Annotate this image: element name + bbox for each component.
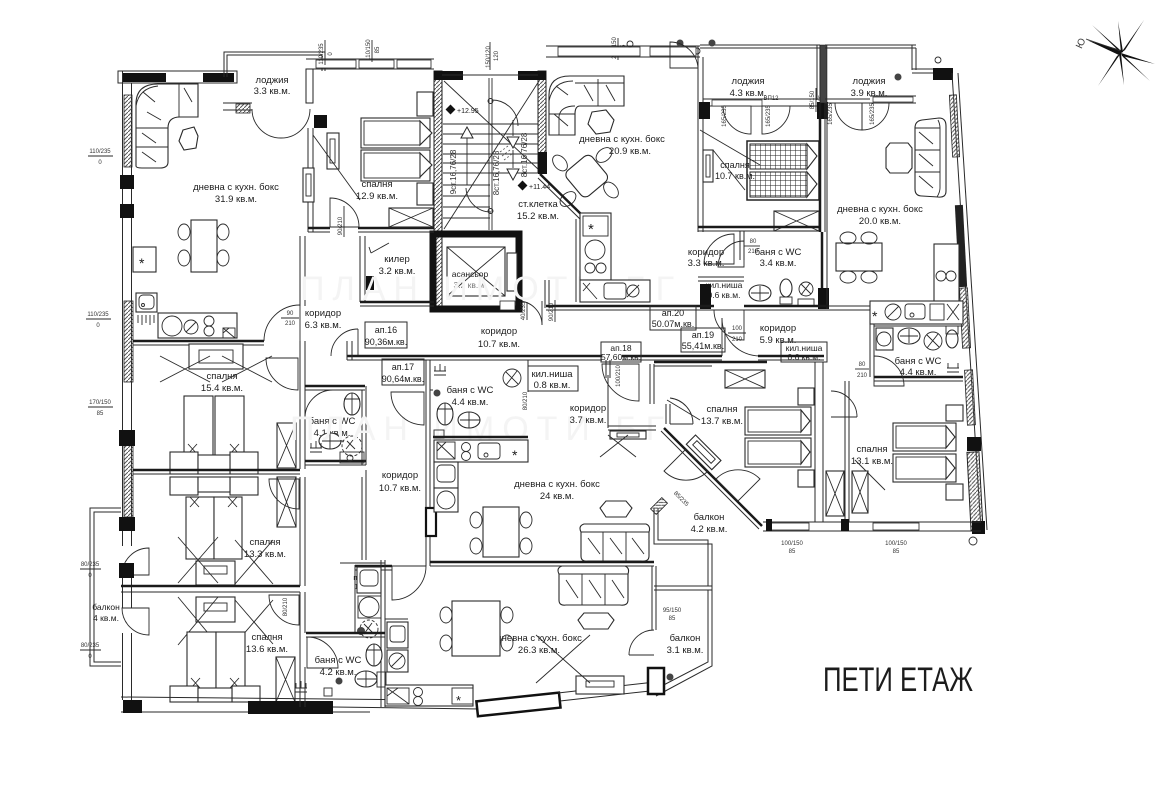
svg-text:дневна с кухн. бокс: дневна с кухн. бокс — [496, 633, 582, 644]
svg-text:165/235: 165/235 — [766, 105, 772, 127]
svg-text:24 кв.м.: 24 кв.м. — [540, 491, 574, 502]
svg-text:дневна с кухн. бокс: дневна с кухн. бокс — [579, 134, 665, 145]
svg-text:110/235: 110/235 — [89, 149, 111, 155]
svg-text:57,60м.кв.: 57,60м.кв. — [601, 352, 641, 362]
svg-text:3.7 кв.м.: 3.7 кв.м. — [570, 415, 607, 426]
svg-text:100/150: 100/150 — [781, 541, 803, 547]
svg-text:85: 85 — [893, 549, 900, 555]
svg-text:6.3 кв.м.: 6.3 кв.м. — [305, 320, 342, 331]
svg-text:210: 210 — [748, 249, 759, 255]
svg-text:3.1 кв.м.: 3.1 кв.м. — [667, 645, 704, 656]
svg-text:лоджия: лоджия — [852, 76, 885, 87]
svg-text:8ст.16,76/28: 8ст.16,76/28 — [492, 150, 501, 195]
svg-text:85: 85 — [375, 46, 381, 53]
svg-text:дневна с кухн. бокс: дневна с кухн. бокс — [837, 204, 923, 215]
svg-text:3.4 кв.м.: 3.4 кв.м. — [760, 258, 797, 269]
svg-text:коридор: коридор — [382, 470, 418, 481]
svg-text:баня с WC: баня с WC — [755, 247, 802, 258]
svg-text:9ст.16,76/28: 9ст.16,76/28 — [449, 149, 458, 194]
svg-text:165/235: 165/235 — [828, 103, 834, 125]
svg-text:лоджия: лоджия — [255, 75, 288, 86]
svg-text:спалня: спалня — [361, 179, 392, 190]
svg-text:90: 90 — [287, 311, 294, 317]
svg-text:0.8 кв.м.: 0.8 кв.м. — [534, 380, 571, 391]
svg-text:31.9 кв.м.: 31.9 кв.м. — [215, 194, 257, 205]
svg-text:110/235: 110/235 — [87, 312, 109, 318]
svg-text:85: 85 — [669, 616, 676, 622]
svg-text:кил.ниша: кил.ниша — [531, 369, 573, 380]
svg-text:спалня: спалня — [706, 404, 737, 415]
svg-text:85: 85 — [789, 549, 796, 555]
svg-text:спалня: спалня — [856, 444, 887, 455]
svg-text:кил.ниша: кил.ниша — [706, 280, 743, 290]
svg-text:*: * — [872, 308, 878, 324]
svg-text:170/150: 170/150 — [89, 400, 111, 406]
svg-text:3.3 кв.м.: 3.3 кв.м. — [254, 86, 291, 97]
svg-text:15.2 кв.м.: 15.2 кв.м. — [517, 211, 559, 222]
svg-text:коридор: коридор — [688, 247, 724, 258]
svg-text:85: 85 — [97, 411, 104, 417]
svg-text:балкон: балкон — [670, 633, 701, 644]
svg-text:*: * — [512, 447, 518, 463]
svg-text:165/235: 165/235 — [722, 105, 728, 127]
svg-text:8ст.16,76/28: 8ст.16,76/28 — [520, 132, 529, 177]
svg-text:100: 100 — [732, 326, 743, 332]
svg-text:коридор: коридор — [305, 308, 341, 319]
svg-text:90,64м.кв.: 90,64м.кв. — [382, 374, 424, 384]
svg-text:120: 120 — [494, 50, 500, 61]
svg-text:40/235: 40/235 — [521, 301, 527, 320]
svg-text:ап.20: ап.20 — [662, 308, 684, 318]
svg-text:коридор: коридор — [481, 326, 517, 337]
svg-text:10.7 кв.м.: 10.7 кв.м. — [379, 483, 421, 494]
svg-text:80/210: 80/210 — [283, 597, 289, 616]
svg-text:110/150: 110/150 — [366, 39, 372, 61]
svg-text:13.6 кв.м.: 13.6 кв.м. — [246, 644, 288, 655]
svg-text:+12.95: +12.95 — [457, 108, 479, 115]
svg-text:ап.19: ап.19 — [692, 330, 714, 340]
svg-text:4 кв.м.: 4 кв.м. — [93, 613, 119, 623]
svg-text:спалня: спалня — [720, 160, 750, 170]
svg-text:баня с WC: баня с WC — [447, 385, 494, 396]
svg-text:95/150: 95/150 — [663, 608, 682, 614]
svg-text:балкон: балкон — [694, 512, 725, 523]
svg-text:4.2 кв.м.: 4.2 кв.м. — [691, 524, 728, 535]
svg-text:ап.16: ап.16 — [375, 325, 397, 335]
svg-text:12.9 кв.м.: 12.9 кв.м. — [356, 191, 398, 202]
svg-text:80: 80 — [859, 362, 866, 368]
svg-text:13.7 кв.м.: 13.7 кв.м. — [701, 416, 743, 427]
svg-text:дневна с кухн. бокс: дневна с кухн. бокс — [514, 479, 600, 490]
svg-text:165/235: 165/235 — [870, 103, 876, 125]
svg-text:килер: килер — [384, 254, 410, 265]
svg-text:90/210: 90/210 — [549, 302, 555, 321]
svg-text:210: 210 — [857, 373, 868, 379]
svg-text:4.3 кв.м.: 4.3 кв.м. — [730, 88, 767, 99]
svg-text:13.3 кв.м.: 13.3 кв.м. — [244, 549, 286, 560]
svg-text:80: 80 — [750, 239, 757, 245]
svg-text:20.9 кв.м.: 20.9 кв.м. — [609, 146, 651, 157]
svg-text:55,41м.кв.: 55,41м.кв. — [682, 341, 724, 351]
svg-text:100/210: 100/210 — [616, 365, 622, 387]
svg-text:баня с WC: баня с WC — [895, 356, 942, 367]
svg-text:10.7 кв.м.: 10.7 кв.м. — [715, 171, 755, 181]
svg-text:+11.44: +11.44 — [529, 184, 550, 191]
svg-text:10.7 кв.м.: 10.7 кв.м. — [478, 339, 520, 350]
svg-text:80/210: 80/210 — [523, 391, 529, 410]
svg-text:4.2 кв.м.: 4.2 кв.м. — [320, 667, 357, 678]
svg-text:*: * — [588, 221, 594, 238]
svg-text:*: * — [456, 693, 461, 708]
svg-text:балкон: балкон — [92, 602, 120, 612]
svg-text:0.6 кв.м.: 0.6 кв.м. — [708, 290, 741, 300]
svg-text:4.4 кв.м.: 4.4 кв.м. — [452, 397, 489, 408]
svg-text:коридор: коридор — [570, 403, 606, 414]
svg-text:110/235: 110/235 — [319, 43, 325, 65]
svg-text:дневна с кухн. бокс: дневна с кухн. бокс — [193, 182, 279, 193]
svg-text:*: * — [139, 255, 145, 271]
svg-text:ап.17: ап.17 — [392, 362, 414, 372]
svg-text:100/150: 100/150 — [885, 541, 907, 547]
svg-text:коридор: коридор — [760, 323, 796, 334]
svg-text:спалня: спалня — [249, 537, 280, 548]
svg-text:90/210: 90/210 — [338, 216, 344, 235]
svg-text:15.4 кв.м.: 15.4 кв.м. — [201, 383, 243, 394]
svg-text:лоджия: лоджия — [731, 76, 764, 87]
svg-text:90,36м.кв.: 90,36м.кв. — [365, 337, 407, 347]
svg-text:ПЕТИ ЕТАЖ: ПЕТИ ЕТАЖ — [823, 661, 973, 699]
svg-text:210: 210 — [285, 321, 296, 327]
svg-text:20.0 кв.м.: 20.0 кв.м. — [859, 216, 901, 227]
svg-text:ст.клетка: ст.клетка — [518, 199, 558, 210]
svg-text:150/120: 150/120 — [486, 46, 492, 68]
svg-text:13.1 кв.м.: 13.1 кв.м. — [851, 456, 893, 467]
